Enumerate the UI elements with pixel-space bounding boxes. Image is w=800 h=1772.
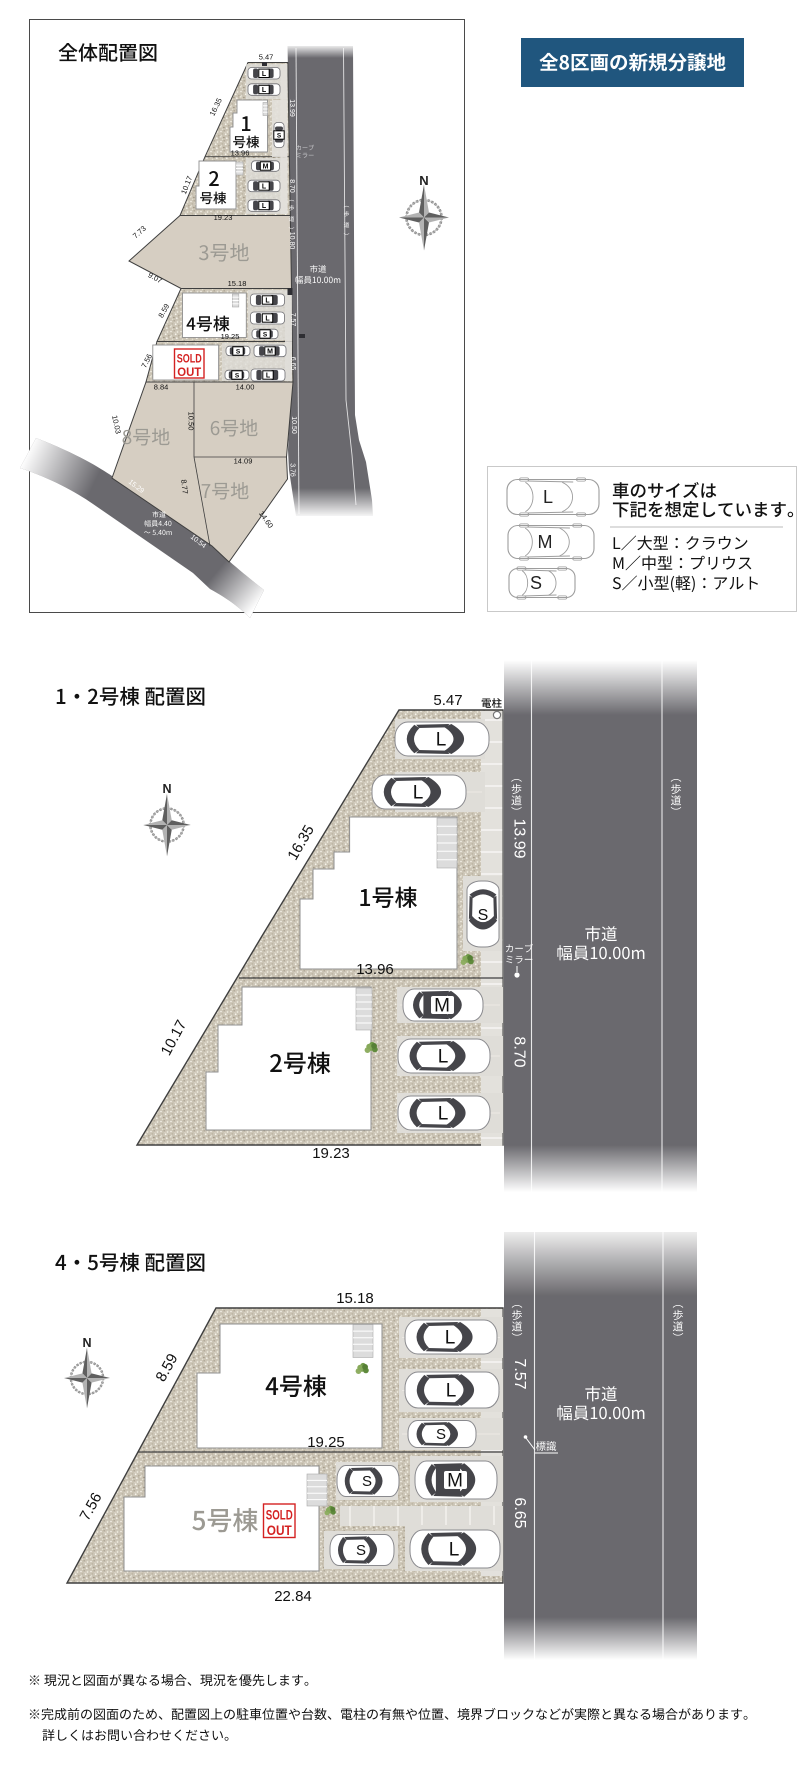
svg-text:S: S xyxy=(356,1542,366,1559)
svg-text:10.80: 10.80 xyxy=(288,232,295,250)
svg-text:S: S xyxy=(530,573,542,593)
svg-text:L: L xyxy=(438,1047,449,1068)
svg-text:19.25: 19.25 xyxy=(307,1434,345,1451)
svg-text:M: M xyxy=(267,349,273,356)
svg-text:OUT: OUT xyxy=(177,365,202,379)
svg-text:L: L xyxy=(445,1328,456,1349)
svg-text:6.65: 6.65 xyxy=(511,1497,528,1528)
svg-text:14.00: 14.00 xyxy=(236,383,255,392)
svg-text:15.18: 15.18 xyxy=(228,279,247,288)
svg-text:6.65: 6.65 xyxy=(289,357,296,371)
svg-text:7.57: 7.57 xyxy=(511,1358,528,1389)
svg-text:10.50: 10.50 xyxy=(187,412,196,431)
svg-text:L: L xyxy=(266,373,271,380)
svg-text:7.57: 7.57 xyxy=(289,313,296,327)
svg-text:S: S xyxy=(436,1426,446,1443)
svg-text:SOLD: SOLD xyxy=(177,351,202,365)
svg-text:N: N xyxy=(419,173,428,188)
svg-text:13.99: 13.99 xyxy=(288,99,295,117)
svg-text:S: S xyxy=(478,907,489,924)
svg-text:S: S xyxy=(263,332,268,339)
svg-text:5.47: 5.47 xyxy=(259,53,274,62)
svg-text:N: N xyxy=(162,782,171,796)
svg-text:15.18: 15.18 xyxy=(336,1290,374,1307)
svg-text:13.96: 13.96 xyxy=(231,149,250,158)
svg-text:L: L xyxy=(265,298,270,305)
svg-text:S: S xyxy=(277,133,282,140)
svg-text:L: L xyxy=(543,487,553,507)
svg-text:L: L xyxy=(265,316,270,323)
svg-text:L: L xyxy=(438,1104,449,1125)
svg-text:M: M xyxy=(447,1471,463,1492)
svg-text:L: L xyxy=(262,71,267,78)
svg-text:13.96: 13.96 xyxy=(356,961,394,978)
svg-text:3.76: 3.76 xyxy=(289,463,296,477)
svg-text:M: M xyxy=(538,532,553,552)
svg-text:19.23: 19.23 xyxy=(312,1145,350,1162)
svg-text:L: L xyxy=(449,1540,460,1561)
svg-text:M: M xyxy=(434,996,450,1017)
svg-text:OUT: OUT xyxy=(267,1523,293,1538)
svg-text:8.84: 8.84 xyxy=(154,383,169,392)
svg-text:8.70: 8.70 xyxy=(511,1036,528,1067)
svg-text:14.09: 14.09 xyxy=(234,457,253,466)
svg-text:L: L xyxy=(262,203,267,210)
svg-text:13.99: 13.99 xyxy=(511,818,528,858)
svg-text:5.47: 5.47 xyxy=(433,692,462,709)
svg-text:19.23: 19.23 xyxy=(214,213,233,222)
svg-text:L: L xyxy=(436,730,447,751)
svg-text:S: S xyxy=(236,349,241,356)
svg-text:8.77: 8.77 xyxy=(179,479,190,495)
svg-text:N: N xyxy=(82,1336,91,1350)
svg-text:8.70: 8.70 xyxy=(288,179,295,193)
svg-text:S: S xyxy=(235,373,240,380)
svg-text:L: L xyxy=(262,184,267,191)
svg-text:22.84: 22.84 xyxy=(274,1588,312,1605)
svg-text:SOLD: SOLD xyxy=(266,1507,293,1522)
svg-text:L: L xyxy=(413,783,424,804)
svg-text:L: L xyxy=(446,1381,457,1402)
svg-text:M: M xyxy=(263,164,269,171)
svg-text:19.25: 19.25 xyxy=(221,332,240,341)
svg-text:S: S xyxy=(362,1473,372,1490)
svg-text:10.50: 10.50 xyxy=(290,416,297,434)
svg-text:L: L xyxy=(262,87,267,94)
